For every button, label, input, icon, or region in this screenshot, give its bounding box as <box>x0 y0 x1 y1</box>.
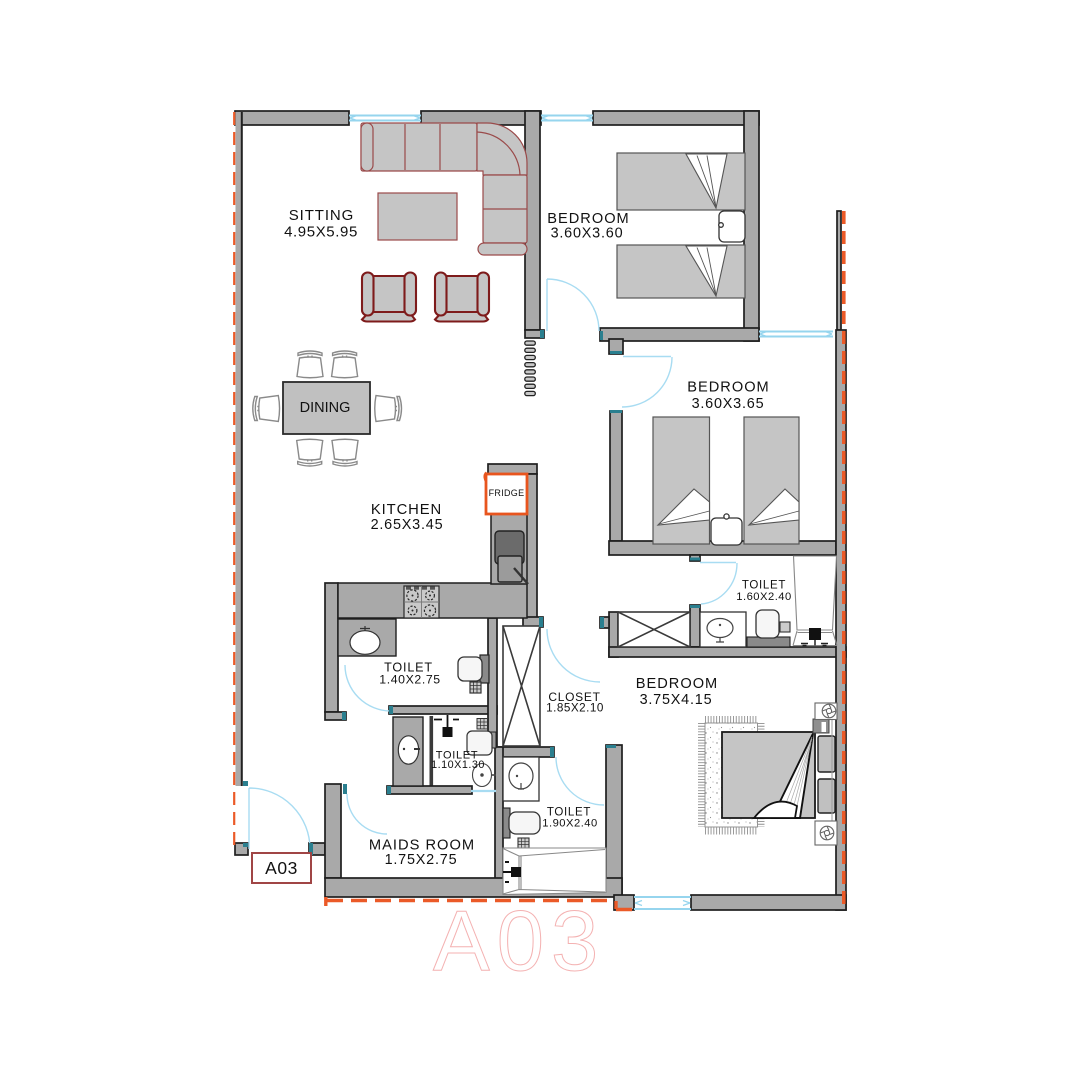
svg-text:1.90X2.40: 1.90X2.40 <box>542 818 598 830</box>
svg-text:TOILET: TOILET <box>742 580 786 592</box>
svg-text:1.85X2.10: 1.85X2.10 <box>546 702 604 715</box>
svg-text:2.65X3.45: 2.65X3.45 <box>371 517 444 533</box>
svg-text:A03: A03 <box>265 858 298 878</box>
svg-text:3.60X3.60: 3.60X3.60 <box>551 226 624 242</box>
svg-text:1.40X2.75: 1.40X2.75 <box>379 673 440 687</box>
svg-text:4.95X5.95: 4.95X5.95 <box>284 224 358 241</box>
svg-text:DINING: DINING <box>300 400 351 416</box>
svg-text:3.60X3.65: 3.60X3.65 <box>692 396 765 412</box>
svg-text:BEDROOM: BEDROOM <box>687 380 769 396</box>
svg-text:KITCHEN: KITCHEN <box>371 502 442 518</box>
svg-text:BEDROOM: BEDROOM <box>547 211 629 227</box>
svg-text:A03: A03 <box>433 894 605 989</box>
svg-text:3.75X4.15: 3.75X4.15 <box>640 692 713 708</box>
svg-text:1.10X1.30: 1.10X1.30 <box>431 759 485 771</box>
svg-text:SITTING: SITTING <box>289 207 354 224</box>
svg-text:FRIDGE: FRIDGE <box>489 488 525 498</box>
svg-text:1.60X2.40: 1.60X2.40 <box>736 591 792 603</box>
svg-text:1.75X2.75: 1.75X2.75 <box>385 852 458 868</box>
svg-text:BEDROOM: BEDROOM <box>636 676 718 692</box>
